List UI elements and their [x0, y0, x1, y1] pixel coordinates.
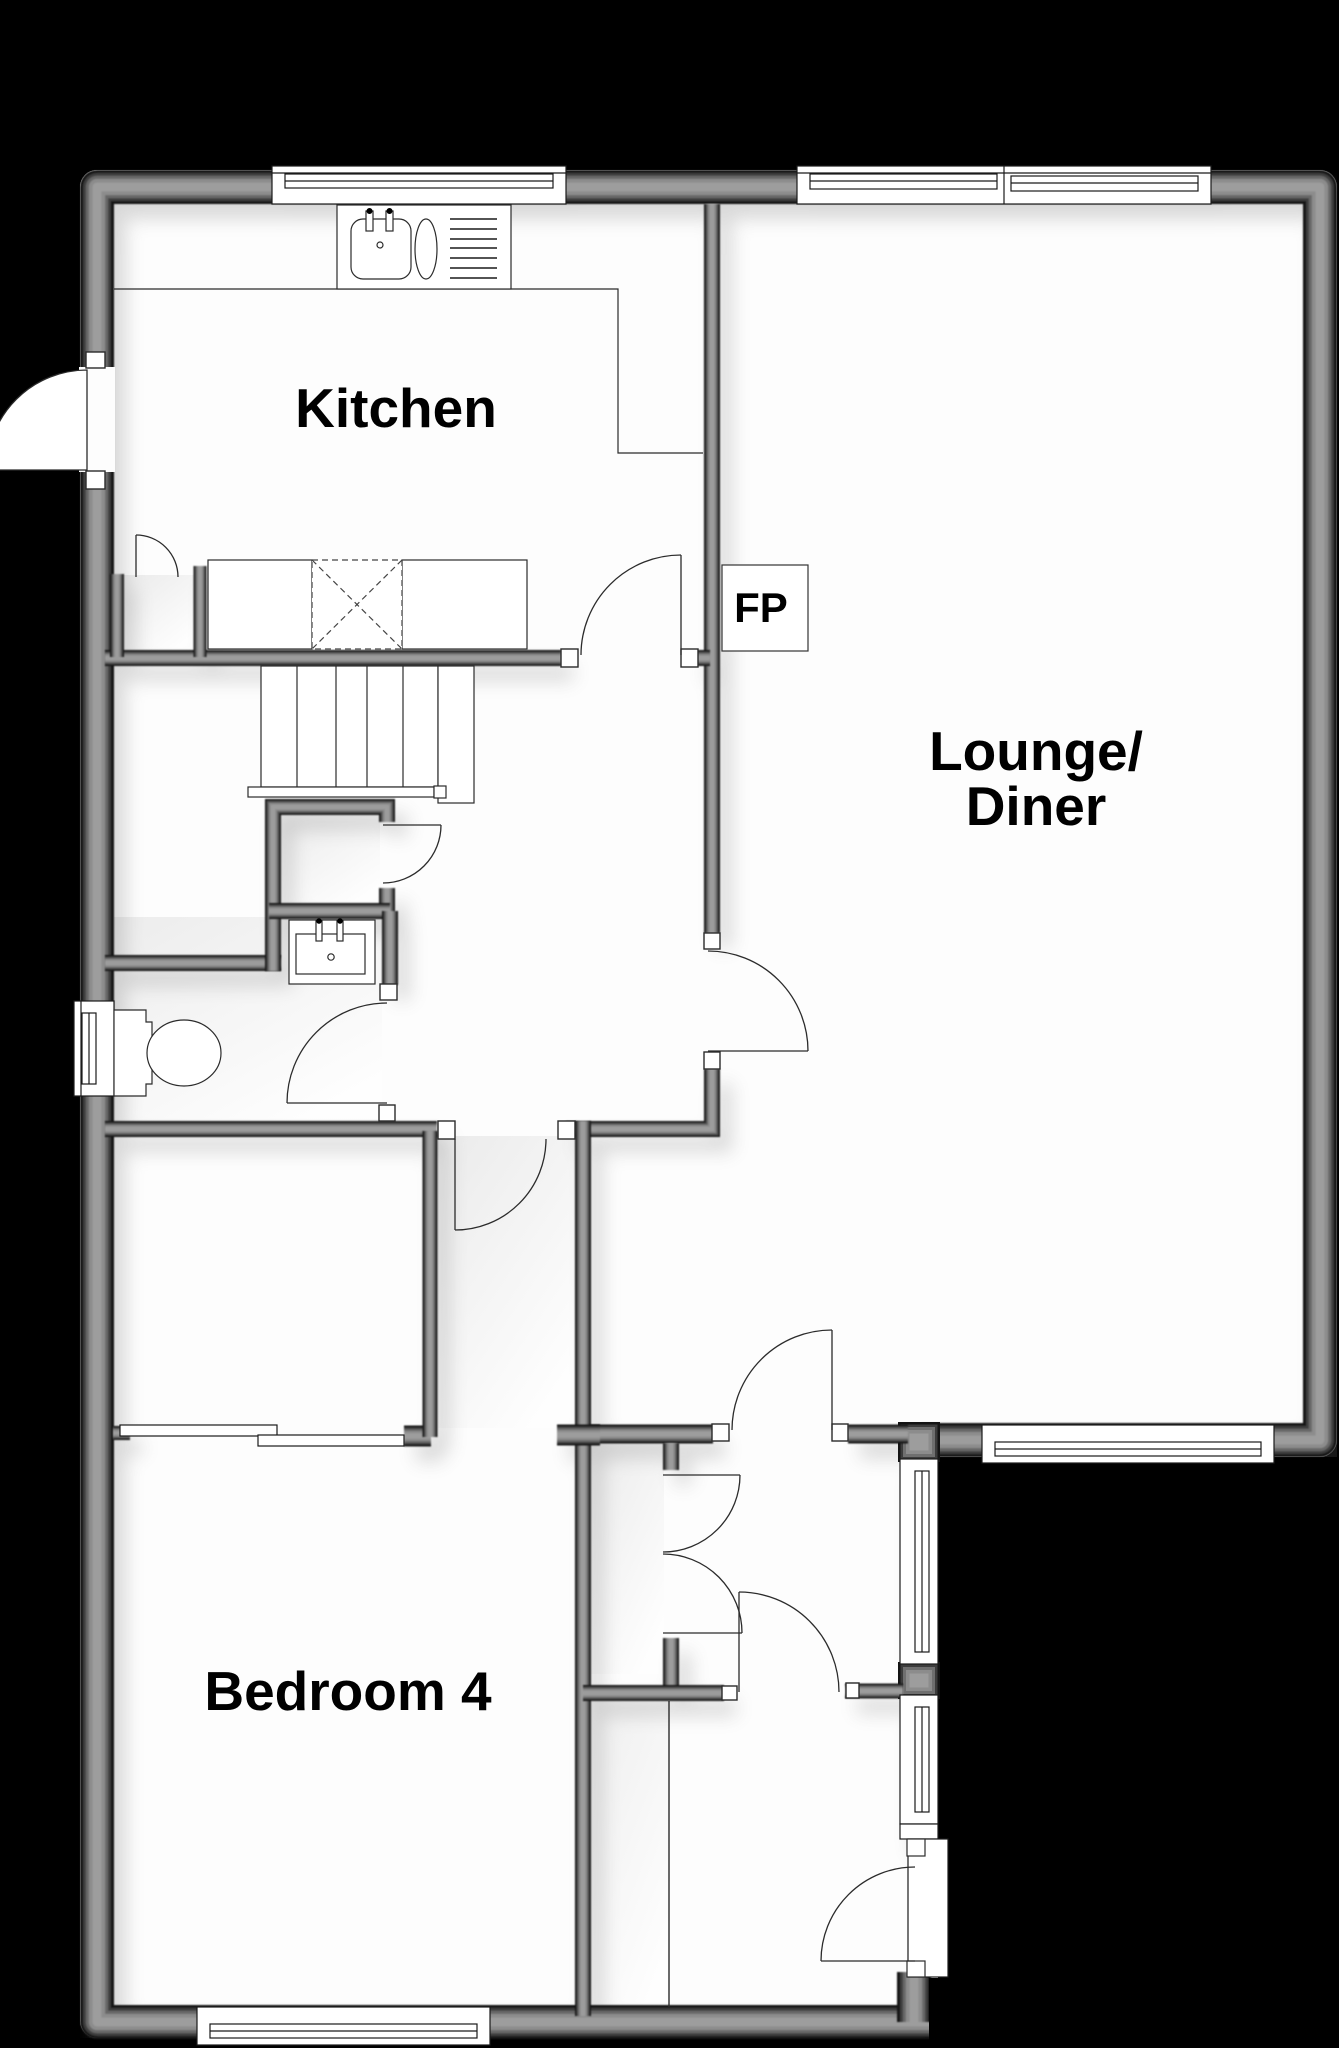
svg-text:FP: FP [734, 584, 788, 631]
svg-text:Diner: Diner [966, 775, 1107, 837]
svg-text:Lounge/: Lounge/ [929, 720, 1143, 782]
svg-text:Kitchen: Kitchen [295, 377, 497, 439]
svg-text:Bedroom 4: Bedroom 4 [204, 1660, 492, 1722]
